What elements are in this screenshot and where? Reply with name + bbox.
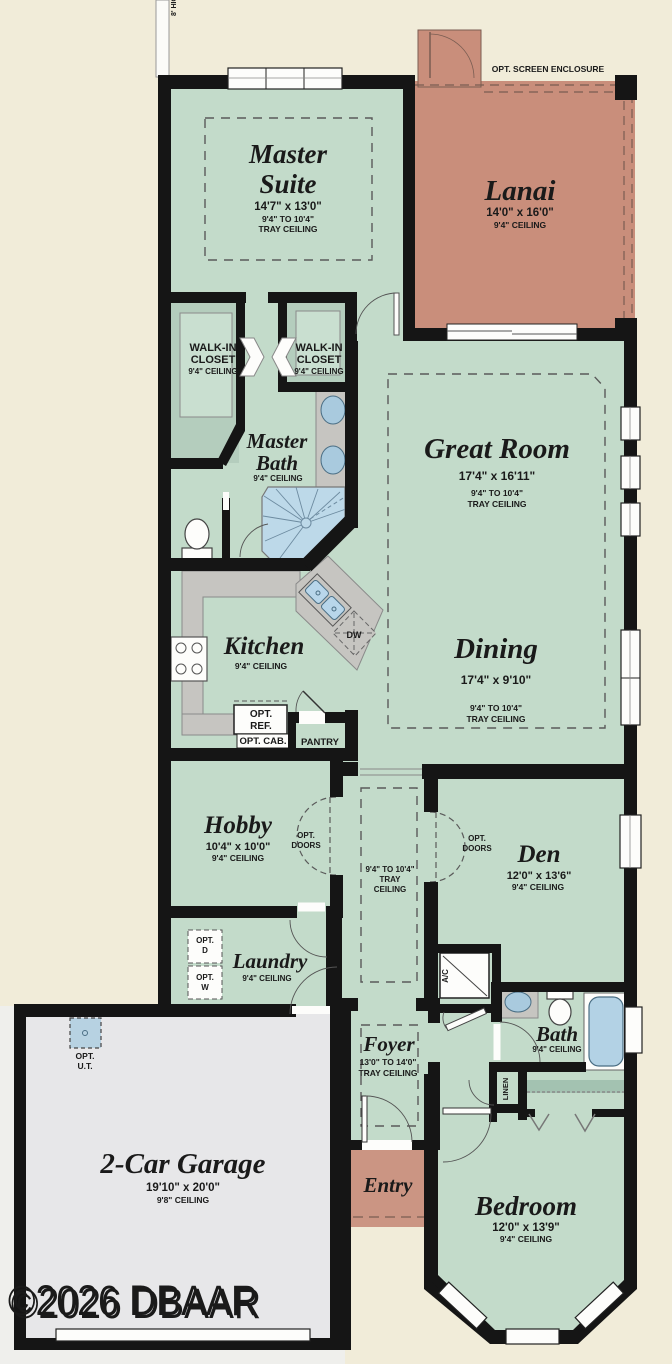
svg-text:Den: Den — [516, 841, 560, 868]
svg-text:Hobby: Hobby — [203, 812, 273, 839]
svg-text:Laundry: Laundry — [232, 949, 308, 973]
svg-text:TRAY CEILING: TRAY CEILING — [258, 224, 317, 234]
svg-text:A/C: A/C — [441, 969, 450, 983]
svg-text:Dining: Dining — [453, 633, 538, 665]
svg-text:W: W — [201, 983, 209, 992]
svg-text:DOORS: DOORS — [291, 841, 321, 850]
svg-text:17'4" x 9'10": 17'4" x 9'10" — [461, 673, 531, 687]
svg-text:9'4" CEILING: 9'4" CEILING — [500, 1234, 553, 1244]
svg-text:Kitchen: Kitchen — [223, 633, 305, 660]
svg-text:12'0" x 13'9": 12'0" x 13'9" — [492, 1222, 560, 1234]
svg-text:9'4" CEILING: 9'4" CEILING — [242, 974, 291, 983]
svg-text:TRAY CEILING: TRAY CEILING — [466, 714, 525, 724]
svg-text:OPT.: OPT. — [468, 834, 486, 843]
svg-text:Master: Master — [246, 429, 309, 453]
svg-text:9'4" TO 10'4": 9'4" TO 10'4" — [470, 703, 522, 713]
svg-text:10'4" x 10'0": 10'4" x 10'0" — [206, 841, 271, 853]
svg-text:Suite: Suite — [259, 169, 316, 199]
svg-text:OPT. CAB.: OPT. CAB. — [240, 736, 287, 747]
svg-text:OPT.: OPT. — [297, 831, 315, 840]
svg-text:2-Car Garage: 2-Car Garage — [99, 1148, 265, 1180]
svg-text:WALK-IN: WALK-IN — [295, 342, 342, 354]
svg-text:CEILING: CEILING — [374, 885, 406, 894]
svg-text:OPT. SCREEN ENCLOSURE: OPT. SCREEN ENCLOSURE — [492, 64, 605, 74]
svg-text:LINEN: LINEN — [501, 1078, 510, 1101]
svg-text:17'4" x 16'11": 17'4" x 16'11" — [459, 469, 535, 483]
svg-text:14'0" x 16'0": 14'0" x 16'0" — [486, 207, 554, 219]
svg-text:14'7" x 13'0": 14'7" x 13'0" — [254, 201, 322, 213]
svg-text:Bedroom: Bedroom — [474, 1191, 577, 1221]
svg-text:9'8" CEILING: 9'8" CEILING — [157, 1195, 210, 1205]
svg-text:9'4" CEILING: 9'4" CEILING — [212, 853, 265, 863]
svg-text:9'4" TO 10'4": 9'4" TO 10'4" — [262, 214, 314, 224]
svg-text:DW: DW — [347, 630, 362, 640]
svg-text:Entry: Entry — [362, 1173, 413, 1197]
svg-text:WALK-IN: WALK-IN — [189, 342, 236, 354]
svg-text:Bath: Bath — [255, 451, 298, 475]
svg-text:9'4" TO 10'4": 9'4" TO 10'4" — [365, 865, 414, 874]
svg-text:OPT.: OPT. — [196, 973, 214, 982]
svg-text:TRAY: TRAY — [379, 875, 401, 884]
svg-text:TRAY CEILING: TRAY CEILING — [467, 499, 526, 509]
svg-text:9'4" TO 10'4": 9'4" TO 10'4" — [471, 488, 523, 498]
svg-text:OPT.: OPT. — [76, 1051, 95, 1061]
svg-text:DOORS: DOORS — [462, 844, 492, 853]
svg-text:©2026 DBAAR: ©2026 DBAAR — [8, 1277, 258, 1325]
svg-text:PANTRY: PANTRY — [301, 737, 340, 748]
svg-text:Foyer: Foyer — [362, 1032, 415, 1056]
svg-text:OPT.: OPT. — [196, 936, 214, 945]
svg-text:9'4" CEILING: 9'4" CEILING — [253, 474, 302, 483]
svg-text:TRAY CEILING: TRAY CEILING — [358, 1068, 417, 1078]
svg-text:Lanai: Lanai — [484, 175, 556, 207]
svg-text:Master: Master — [248, 139, 328, 169]
svg-text:CLOSET: CLOSET — [191, 354, 236, 366]
svg-text:9'4" CEILING: 9'4" CEILING — [494, 220, 547, 230]
svg-text:Great Room: Great Room — [424, 433, 570, 465]
svg-text:CLOSET: CLOSET — [297, 354, 342, 366]
svg-text:Bath: Bath — [535, 1022, 578, 1046]
svg-text:OPT.: OPT. — [250, 709, 272, 720]
svg-text:19'10" x 20'0": 19'10" x 20'0" — [146, 1182, 220, 1194]
svg-text:12'0" x 13'6": 12'0" x 13'6" — [507, 870, 572, 882]
svg-text:9'4" CEILING: 9'4" CEILING — [294, 367, 343, 376]
svg-text:9'4" CEILING: 9'4" CEILING — [188, 367, 237, 376]
svg-text:9'4" CEILING: 9'4" CEILING — [235, 661, 288, 671]
svg-text:9'4" CEILING: 9'4" CEILING — [532, 1045, 581, 1054]
svg-text:8' HIGH WALL: 8' HIGH WALL — [171, 0, 178, 16]
svg-text:D: D — [202, 946, 208, 955]
svg-text:REF.: REF. — [250, 721, 272, 732]
svg-text:9'4" CEILING: 9'4" CEILING — [512, 882, 565, 892]
svg-text:U.T.: U.T. — [77, 1061, 92, 1071]
svg-text:13'0" TO 14'0": 13'0" TO 14'0" — [360, 1057, 417, 1067]
